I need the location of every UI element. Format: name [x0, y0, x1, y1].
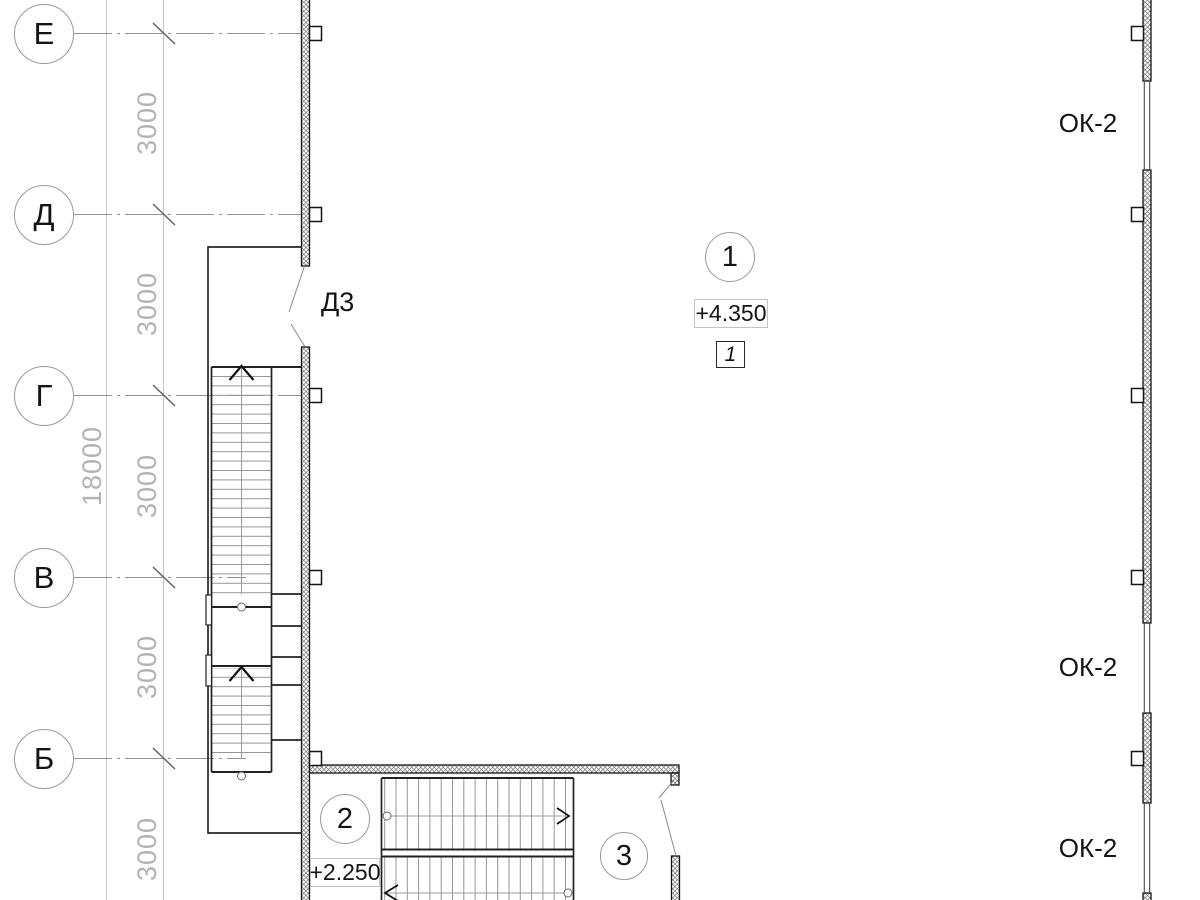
- bottom-wall-run: [310, 765, 680, 773]
- axis-letter: Б: [34, 741, 54, 777]
- floor-plan-svg: [0, 0, 1200, 900]
- column-marker: [310, 571, 322, 585]
- column-marker: [1132, 389, 1144, 403]
- axis-letter: Е: [34, 16, 55, 52]
- axis-bubble-b: Б: [14, 729, 74, 789]
- stair-h-treads-lower: [382, 857, 573, 900]
- axis-letter: В: [34, 560, 55, 596]
- stair-vertical: [206, 366, 302, 780]
- door-mark-d3: Д3: [321, 287, 354, 318]
- bay-dim-2: 3000: [134, 244, 160, 364]
- window-opening-1: [1144, 81, 1149, 170]
- column-marker: [310, 208, 322, 222]
- overall-dim: 18000: [79, 406, 105, 526]
- area-number: 3: [616, 840, 632, 873]
- window-mark-3: ОК-2: [1046, 833, 1130, 864]
- elevation-box-upper: +4.350: [694, 299, 768, 328]
- area-bubble-2: 2: [320, 794, 370, 844]
- floor-plan-canvas: Е Д Г В Б 3000 3000 3000 3000 3000 18000…: [0, 0, 1200, 900]
- axis-bubble-v: В: [14, 548, 74, 608]
- column-markers: [310, 27, 1144, 766]
- area-number: 1: [722, 241, 738, 274]
- door-d3-leaf: [289, 266, 305, 346]
- window-opening-2: [1144, 623, 1149, 713]
- axis-bubble-e: Е: [14, 4, 74, 64]
- axis-letter: Д: [34, 197, 55, 233]
- elevation-box-lower: +2.250: [310, 858, 380, 887]
- axis-bubble-d: Д: [14, 185, 74, 245]
- stair-h-treads-upper: [382, 779, 573, 849]
- area-bubble-3: 3: [600, 832, 648, 880]
- area-number: 2: [337, 803, 353, 836]
- column-marker: [310, 389, 322, 403]
- right-wall-seg-4: [1143, 893, 1151, 900]
- column-marker: [1132, 208, 1144, 222]
- bay-dim-3: 3000: [134, 426, 160, 546]
- column-marker: [1132, 571, 1144, 585]
- section-flag: 1: [716, 341, 745, 368]
- window-mark-1: ОК-2: [1046, 108, 1130, 139]
- bay-dim-1: 3000: [134, 63, 160, 183]
- window-opening-3: [1144, 803, 1149, 893]
- column-marker: [310, 752, 322, 766]
- bay-dim-4: 3000: [134, 607, 160, 727]
- axis-letter: Г: [36, 378, 53, 414]
- column-marker: [1132, 27, 1144, 41]
- left-wall: [302, 0, 310, 900]
- bottom-wall-return: [671, 773, 679, 785]
- left-wall-upper: [302, 0, 310, 266]
- stair-shaft-dividers: [272, 594, 302, 740]
- axis-bubble-g: Г: [14, 366, 74, 426]
- door-right-leaf: [659, 780, 676, 856]
- area-bubble-1: 1: [705, 232, 755, 282]
- stair-horizontal: [382, 778, 574, 900]
- door-jamb-wall: [672, 856, 680, 900]
- column-marker: [310, 27, 322, 41]
- bay-dim-5: 3000: [134, 789, 160, 900]
- window-mark-2: ОК-2: [1046, 652, 1130, 683]
- column-marker: [1132, 752, 1144, 766]
- left-wall-lower: [302, 347, 310, 900]
